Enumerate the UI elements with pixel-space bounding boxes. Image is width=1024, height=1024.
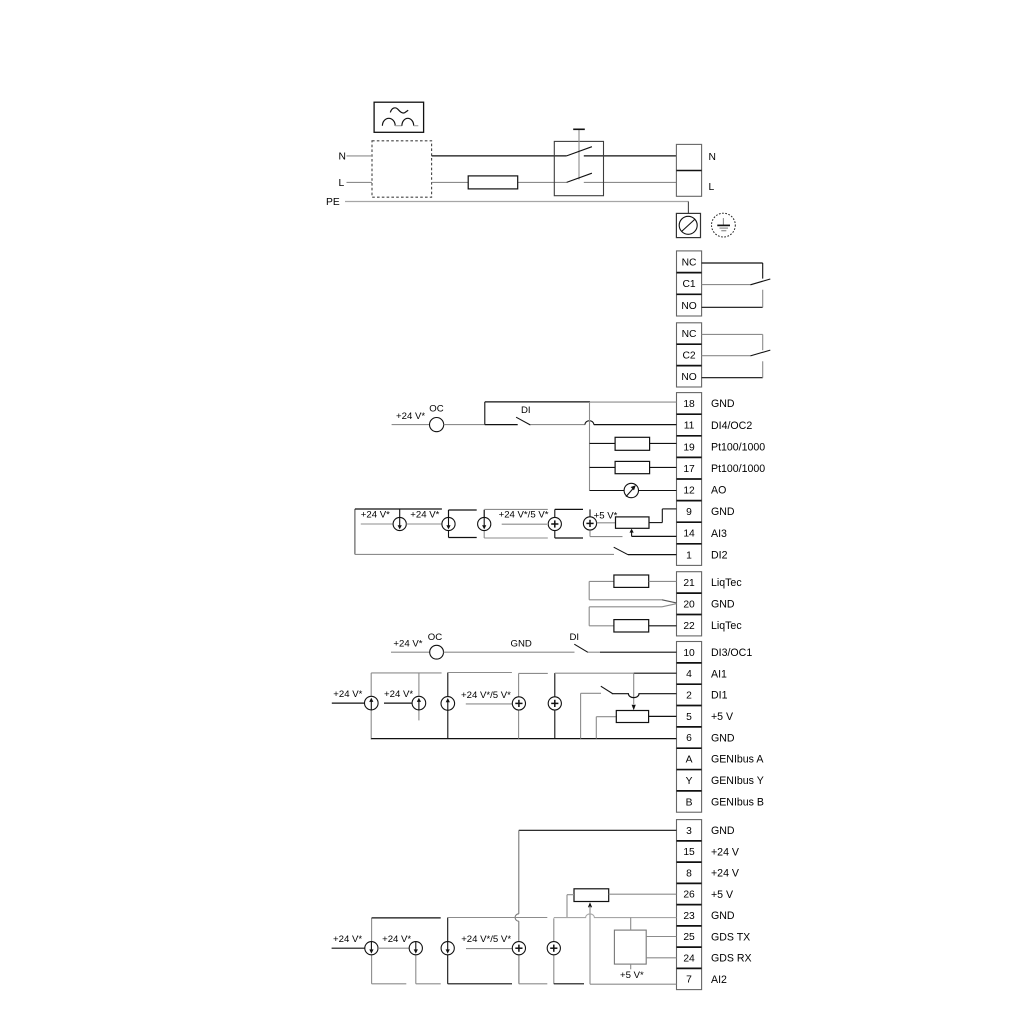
svg-text:Pt100/1000: Pt100/1000 — [711, 441, 765, 453]
svg-text:+24 V*/5 V*: +24 V*/5 V* — [461, 690, 511, 701]
svg-text:24: 24 — [683, 953, 695, 964]
svg-text:+24 V*: +24 V* — [333, 934, 362, 945]
svg-text:15: 15 — [683, 847, 695, 858]
svg-text:+5 V: +5 V — [711, 711, 734, 723]
svg-text:+24 V: +24 V — [711, 868, 740, 880]
svg-text:GND: GND — [711, 506, 735, 518]
svg-text:GND: GND — [711, 825, 735, 837]
svg-text:+24 V: +24 V — [711, 846, 740, 858]
svg-text:22: 22 — [683, 621, 695, 632]
svg-text:GND: GND — [711, 732, 735, 744]
svg-text:5: 5 — [686, 712, 692, 723]
svg-text:18: 18 — [683, 399, 695, 410]
svg-text:N: N — [709, 152, 716, 163]
svg-text:+5 V*: +5 V* — [594, 510, 618, 521]
svg-text:DI4/OC2: DI4/OC2 — [711, 420, 752, 432]
svg-text:10: 10 — [683, 648, 695, 659]
svg-text:+24 V*: +24 V* — [361, 510, 390, 521]
svg-text:+24 V*: +24 V* — [410, 510, 439, 521]
svg-text:AI3: AI3 — [711, 528, 727, 540]
svg-text:+24 V*: +24 V* — [333, 689, 362, 700]
svg-text:+24 V*: +24 V* — [384, 689, 413, 700]
svg-text:AI1: AI1 — [711, 668, 727, 680]
svg-text:GND: GND — [711, 599, 735, 611]
svg-text:DI3/OC1: DI3/OC1 — [711, 647, 752, 659]
svg-text:+24 V*/5 V*: +24 V*/5 V* — [499, 510, 549, 521]
svg-text:7: 7 — [686, 975, 692, 986]
svg-text:2: 2 — [686, 691, 692, 702]
svg-text:+24 V*: +24 V* — [382, 934, 411, 945]
svg-text:17: 17 — [683, 464, 695, 475]
svg-text:B: B — [686, 797, 693, 808]
svg-text:9: 9 — [686, 507, 692, 518]
svg-text:Y: Y — [686, 776, 693, 787]
svg-text:11: 11 — [684, 421, 695, 432]
svg-text:26: 26 — [683, 890, 695, 901]
svg-text:4: 4 — [686, 669, 692, 680]
svg-text:20: 20 — [683, 600, 695, 611]
svg-text:AO: AO — [711, 485, 726, 497]
svg-text:DI2: DI2 — [711, 549, 728, 561]
svg-text:+24 V*: +24 V* — [396, 411, 425, 422]
svg-text:21: 21 — [683, 578, 695, 589]
svg-text:GENIbus B: GENIbus B — [711, 796, 764, 808]
svg-text:12: 12 — [683, 486, 695, 497]
svg-text:DI1: DI1 — [711, 690, 728, 702]
svg-text:DI: DI — [521, 405, 531, 416]
svg-text:23: 23 — [683, 911, 695, 922]
svg-text:+5 V: +5 V — [711, 889, 734, 901]
svg-text:1: 1 — [686, 550, 692, 561]
svg-text:GDS RX: GDS RX — [711, 953, 752, 965]
svg-text:+5 V*: +5 V* — [620, 970, 644, 981]
svg-text:NC: NC — [682, 329, 697, 340]
svg-text:C1: C1 — [682, 279, 695, 290]
svg-text:L: L — [339, 178, 345, 189]
svg-text:3: 3 — [686, 826, 692, 837]
svg-text:NO: NO — [681, 301, 696, 312]
svg-text:GENIbus A: GENIbus A — [711, 754, 764, 766]
svg-text:14: 14 — [683, 529, 695, 540]
svg-text:GDS TX: GDS TX — [711, 931, 750, 943]
svg-text:NO: NO — [681, 372, 696, 383]
svg-text:AI2: AI2 — [711, 974, 727, 986]
svg-text:N: N — [339, 152, 346, 163]
svg-text:8: 8 — [686, 868, 692, 879]
svg-text:LiqTec: LiqTec — [711, 577, 742, 589]
svg-text:6: 6 — [686, 733, 692, 744]
svg-text:GND: GND — [711, 910, 735, 922]
svg-text:25: 25 — [683, 932, 695, 943]
svg-text:PE: PE — [326, 197, 340, 208]
svg-text:C2: C2 — [682, 351, 695, 362]
svg-text:A: A — [686, 755, 693, 766]
svg-text:OC: OC — [429, 403, 443, 414]
svg-text:Pt100/1000: Pt100/1000 — [711, 463, 765, 475]
svg-text:OC: OC — [428, 632, 442, 643]
svg-text:+24 V*/5 V*: +24 V*/5 V* — [461, 934, 511, 945]
svg-text:GND: GND — [511, 639, 532, 650]
svg-text:GENIbus Y: GENIbus Y — [711, 775, 764, 787]
svg-text:+24 V*: +24 V* — [393, 639, 422, 650]
svg-text:DI: DI — [570, 632, 580, 643]
svg-text:GND: GND — [711, 398, 735, 410]
svg-text:19: 19 — [683, 442, 695, 453]
svg-text:LiqTec: LiqTec — [711, 620, 742, 632]
svg-text:NC: NC — [682, 257, 697, 268]
svg-text:L: L — [709, 182, 715, 193]
